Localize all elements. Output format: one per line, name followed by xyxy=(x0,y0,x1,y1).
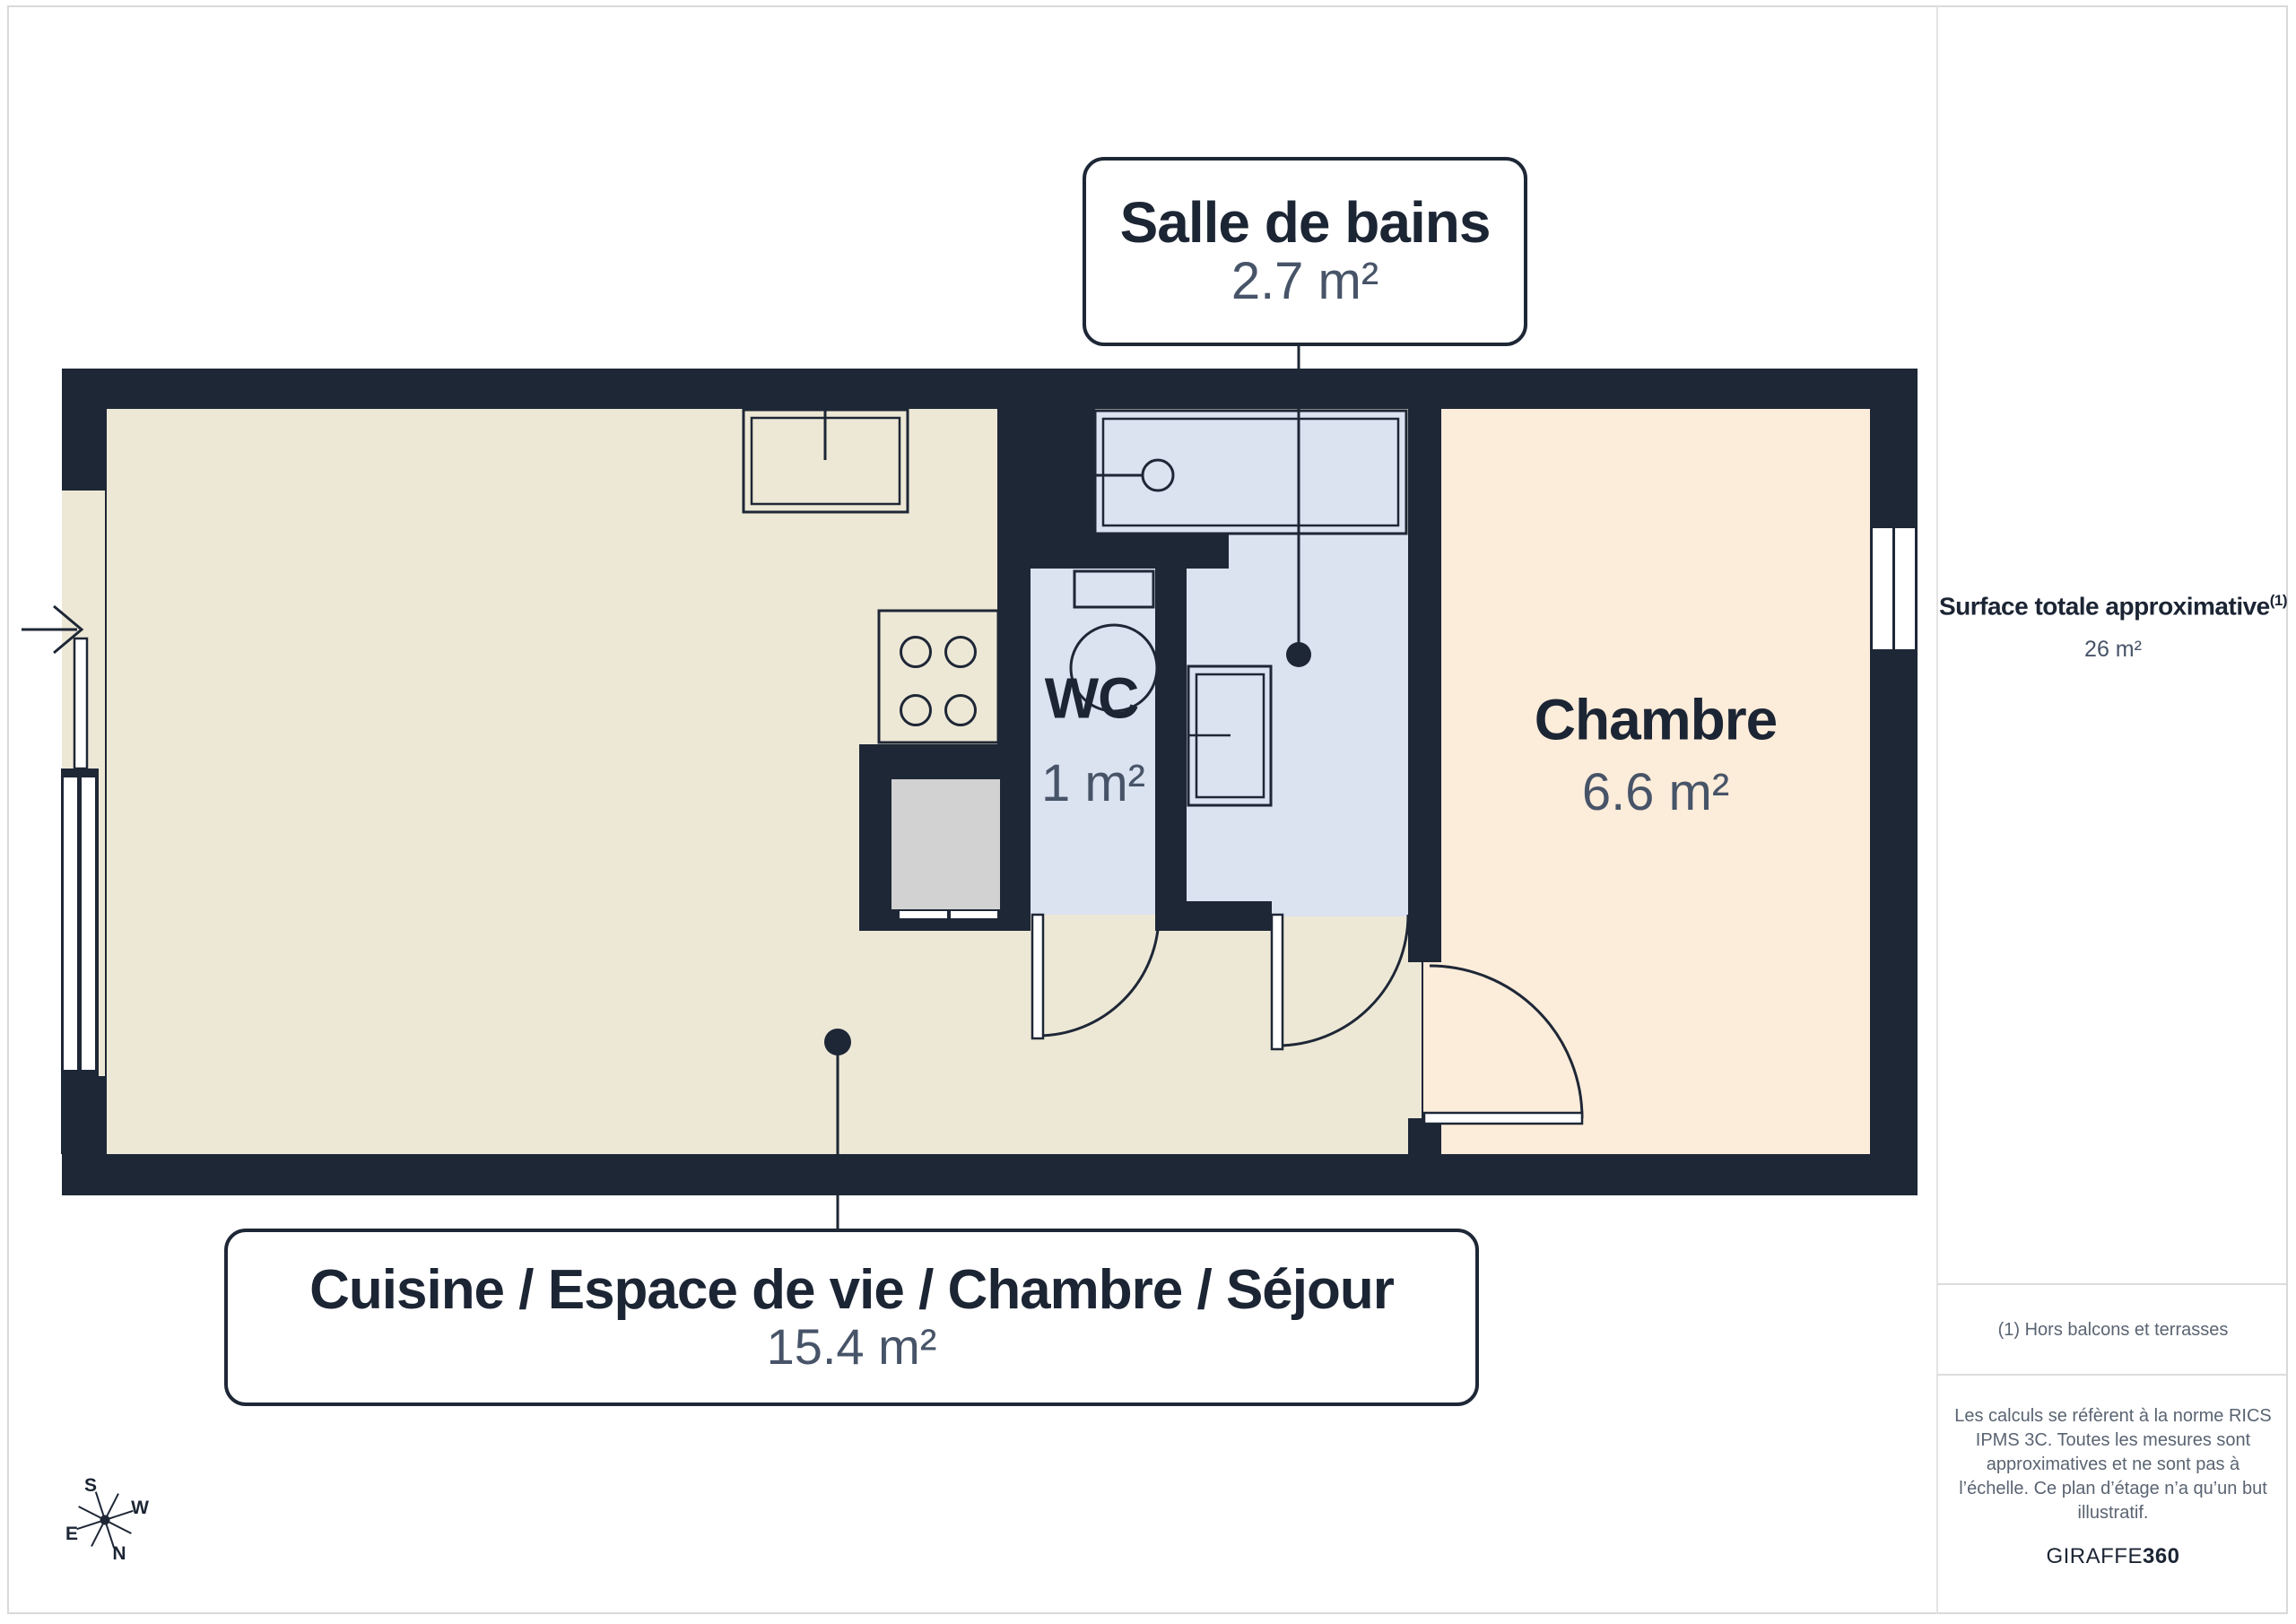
washbasin xyxy=(1188,666,1271,805)
brand-regular: GIRAFFE xyxy=(2046,1544,2143,1568)
closet xyxy=(859,744,1006,931)
bathroom-area: 2.7 m² xyxy=(1231,253,1378,310)
bathroom-label-box: Salle de bains 2.7 m² xyxy=(1083,157,1527,346)
wall-left-bottom xyxy=(61,1076,107,1154)
living-label-box: Cuisine / Espace de vie / Chambre / Séjo… xyxy=(224,1229,1479,1406)
brand-bold: 360 xyxy=(2143,1544,2180,1568)
bedroom-name: Chambre xyxy=(1535,690,1777,750)
bathroom-name: Salle de bains xyxy=(1120,193,1491,253)
total-surface-superscript: (1) xyxy=(2270,592,2287,609)
tub-faucet xyxy=(1143,460,1173,491)
wall-bottom xyxy=(62,1154,1918,1195)
wc-floor xyxy=(1031,569,1155,915)
sidebar-rule-bottom xyxy=(1937,1374,2287,1376)
compass-e: E xyxy=(65,1524,78,1545)
stove xyxy=(879,611,998,743)
window-left xyxy=(61,769,99,1076)
wall-under-tub xyxy=(997,534,1229,569)
total-surface-label: Surface totale approximative(1) xyxy=(1937,592,2289,621)
wall-bedroom-left xyxy=(1408,409,1441,962)
wall-wc-bathroom xyxy=(1155,569,1187,931)
wall-kitchen-bath xyxy=(997,409,1095,534)
wall-left-top xyxy=(62,409,107,491)
bedroom-area: 6.6 m² xyxy=(1582,764,1729,821)
wall-top xyxy=(62,369,1918,409)
living-area: 15.4 m² xyxy=(767,1319,937,1375)
compass-star-icon xyxy=(77,1492,134,1549)
total-surface-text: Surface totale approximative xyxy=(1939,592,2270,620)
disclaimer: Les calculs se réfèrent à la norme RICS … xyxy=(1953,1404,2273,1525)
wc-name: WC xyxy=(1045,668,1139,728)
compass-n: N xyxy=(112,1543,126,1565)
brand-logo: GIRAFFE360 xyxy=(1937,1544,2289,1569)
wall-right xyxy=(1870,409,1918,1154)
compass-s: S xyxy=(84,1475,97,1497)
compass-w: W xyxy=(131,1498,149,1519)
footnote: (1) Hors balcons et terrasses xyxy=(1937,1320,2289,1341)
sidebar-rule-top xyxy=(1937,1283,2287,1285)
living-name: Cuisine / Espace de vie / Chambre / Séjo… xyxy=(309,1261,1394,1319)
total-surface-value: 26 m² xyxy=(1937,637,2289,663)
wall-bathroom-bottom xyxy=(1184,901,1272,931)
wc-area: 1 m² xyxy=(1041,755,1145,812)
bedroom-door-opening xyxy=(1408,962,1441,1118)
